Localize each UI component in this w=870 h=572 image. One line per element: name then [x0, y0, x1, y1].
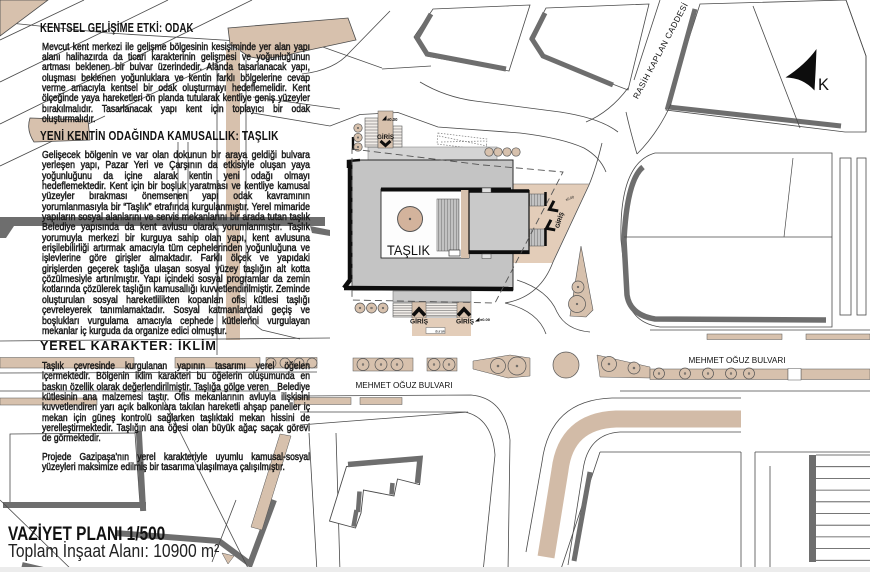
svg-text:GİRİŞ: GİRİŞ	[377, 133, 394, 141]
svg-text:MEHMET OĞUZ BULVARI: MEHMET OĞUZ BULVARI	[356, 381, 453, 390]
svg-text:GİRİŞ: GİRİŞ	[410, 318, 429, 326]
svg-text:TAŞLIK: TAŞLIK	[387, 243, 430, 258]
svg-text:durak: durak	[435, 328, 445, 333]
svg-text:K: K	[818, 76, 829, 94]
svg-text:GİRİŞ: GİRİŞ	[456, 318, 475, 326]
svg-text:±0.00: ±0.00	[480, 317, 491, 322]
svg-text:MEHMET OĞUZ BULVARI: MEHMET OĞUZ BULVARI	[689, 356, 786, 365]
svg-text:±0.00: ±0.00	[387, 117, 398, 122]
